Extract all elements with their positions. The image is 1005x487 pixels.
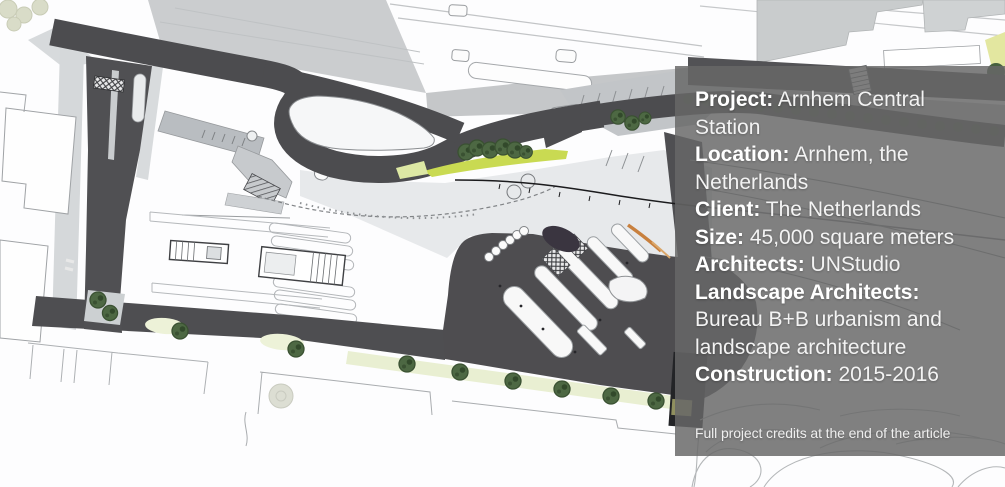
project-field: Construction: 2015-2016 bbox=[695, 361, 987, 389]
project-info-overlay: Project: Arnhem Central Station Location… bbox=[675, 66, 1005, 456]
project-field-value: 45,000 square meters bbox=[750, 226, 954, 249]
project-field-label: Landscape Architects: bbox=[695, 281, 919, 304]
project-field-label: Location: bbox=[695, 143, 790, 166]
project-field-label: Size: bbox=[695, 226, 744, 249]
project-field-label: Construction: bbox=[695, 363, 833, 386]
project-field-value: Bureau B+B urbanism and landscape archit… bbox=[695, 308, 942, 359]
project-field: Size: 45,000 square meters bbox=[695, 224, 987, 252]
faded-tree bbox=[269, 384, 293, 408]
project-field-label: Client: bbox=[695, 198, 760, 221]
west-building-outline bbox=[0, 240, 48, 342]
tram-island bbox=[132, 74, 146, 123]
underground-entrance-box bbox=[169, 241, 228, 264]
project-field-value: UNStudio bbox=[811, 253, 901, 276]
project-field: Landscape Architects: Bureau B+B urbanis… bbox=[695, 279, 987, 362]
project-field-value: 2015-2016 bbox=[839, 363, 939, 386]
project-field: Architects: UNStudio bbox=[695, 251, 987, 279]
project-field-label: Architects: bbox=[695, 253, 805, 276]
credits-footnote: Full project credits at the end of the a… bbox=[695, 424, 987, 448]
project-field-label: Project: bbox=[695, 88, 773, 111]
project-field: Project: Arnhem Central Station bbox=[695, 86, 987, 141]
project-field: Client: The Netherlands bbox=[695, 196, 987, 224]
project-field: Location: Arnhem, the Netherlands bbox=[695, 141, 987, 196]
project-field-value: The Netherlands bbox=[766, 198, 921, 221]
project-fields: Project: Arnhem Central Station Location… bbox=[695, 86, 987, 389]
screenshot-root: Project: Arnhem Central Station Location… bbox=[0, 0, 1005, 487]
